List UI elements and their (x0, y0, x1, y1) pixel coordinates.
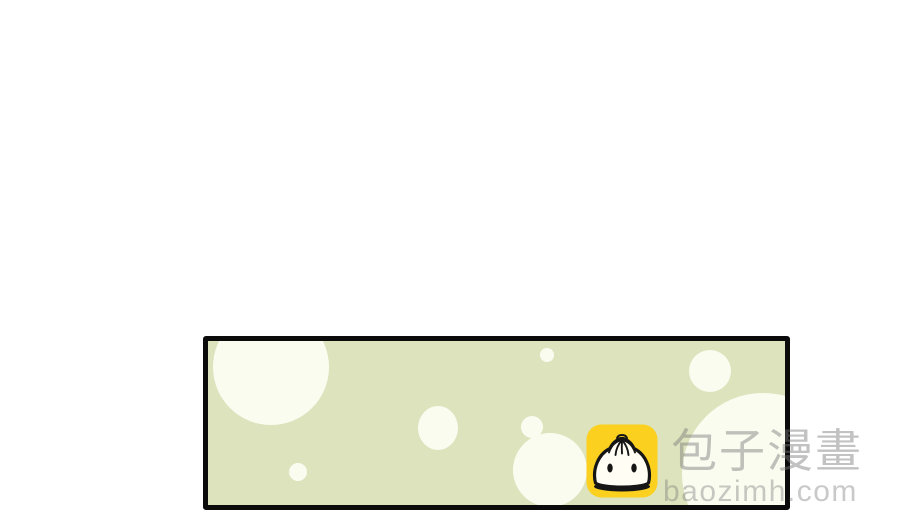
panel-dot-7 (689, 350, 731, 392)
panel-dot-8 (682, 393, 790, 510)
panel-dot-2 (289, 463, 307, 481)
panel-dot-6 (513, 433, 587, 507)
page-background: 包子漫畫 baozimh.com (0, 0, 900, 532)
panel-dot-1 (213, 336, 329, 425)
panel-dots (208, 341, 785, 505)
panel-dot-3 (418, 406, 458, 450)
panel-dot-4 (540, 348, 554, 362)
comic-panel (203, 336, 790, 510)
